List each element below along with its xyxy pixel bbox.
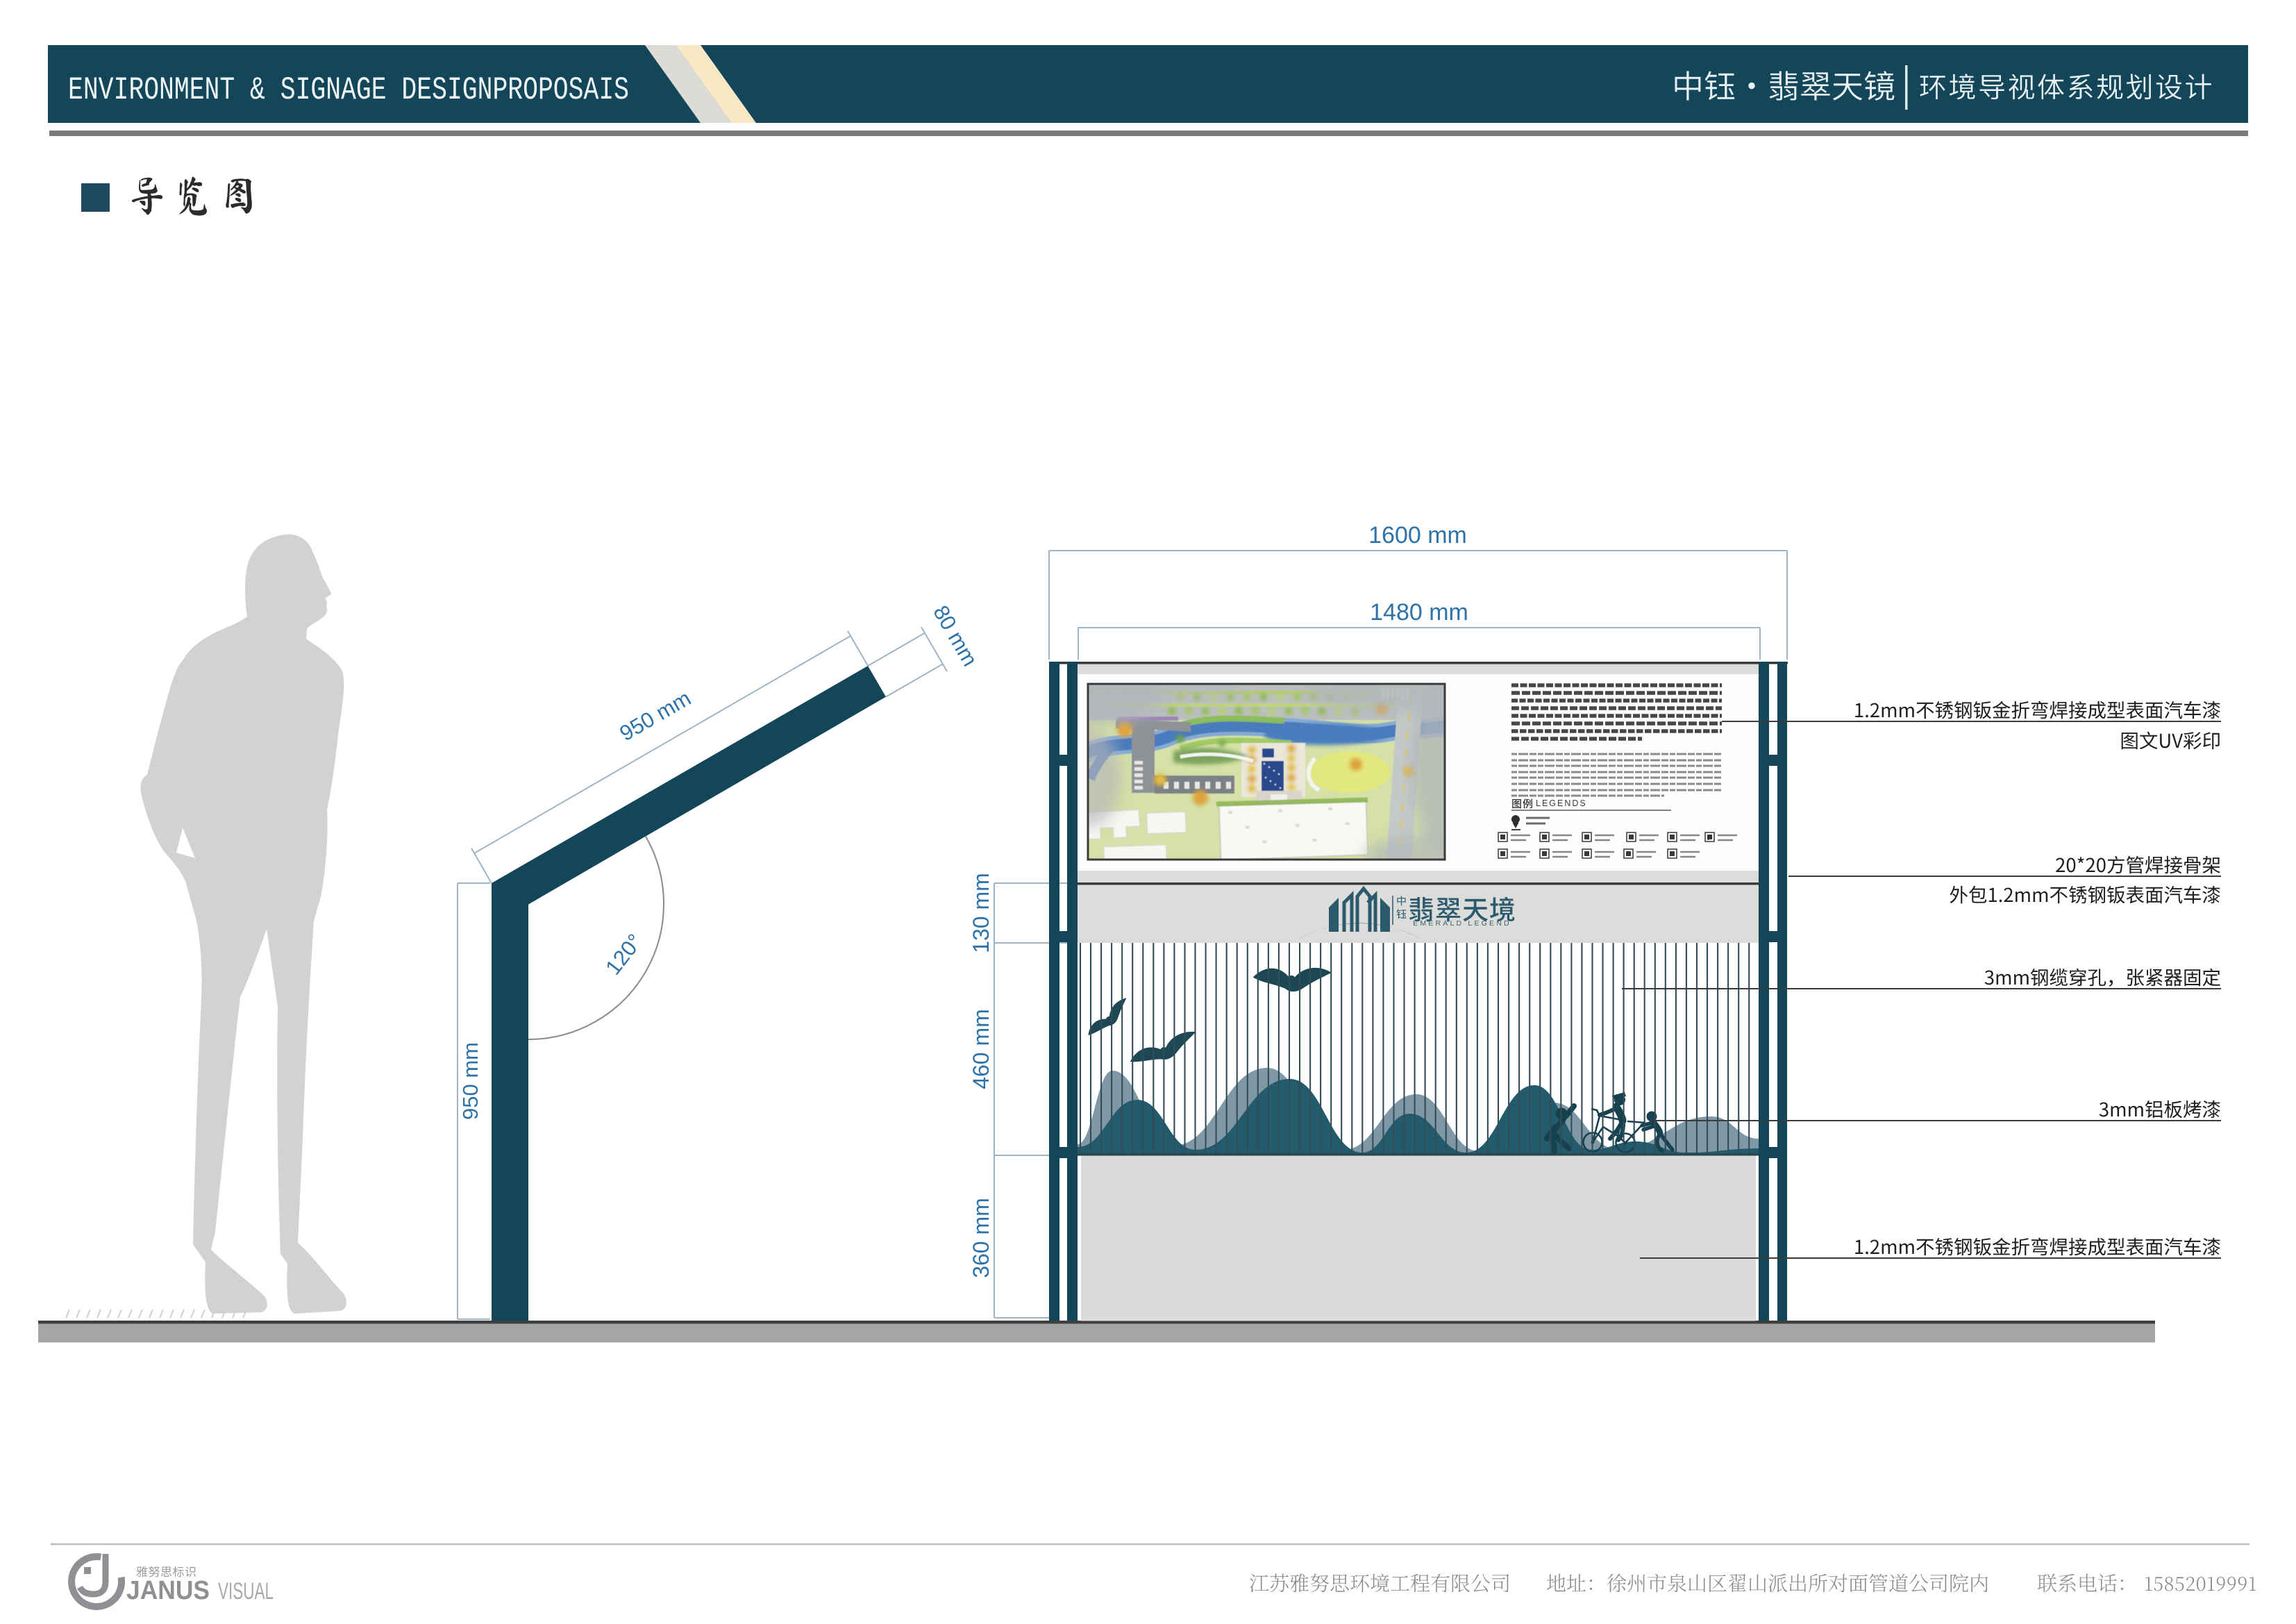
svg-text:950 mm: 950 mm — [458, 1042, 483, 1120]
svg-text:130 mm: 130 mm — [969, 873, 994, 953]
svg-text:460 mm: 460 mm — [969, 1009, 994, 1089]
svg-text:JANUS: JANUS — [126, 1576, 210, 1605]
svg-text:1480 mm: 1480 mm — [1370, 599, 1468, 626]
svg-text:EMERALD LEGEND: EMERALD LEGEND — [1413, 919, 1511, 928]
svg-text:VISUAL: VISUAL — [218, 1578, 274, 1605]
svg-text:1600 mm: 1600 mm — [1368, 522, 1467, 549]
svg-text:P: P — [1707, 834, 1712, 842]
svg-text:360 mm: 360 mm — [969, 1198, 994, 1278]
svg-text:ENVIRONMENT & SIGNAGE DESIGNPR: ENVIRONMENT & SIGNAGE DESIGNPROPOSAIS — [68, 72, 629, 108]
svg-text:LEGENDS: LEGENDS — [1536, 798, 1587, 808]
